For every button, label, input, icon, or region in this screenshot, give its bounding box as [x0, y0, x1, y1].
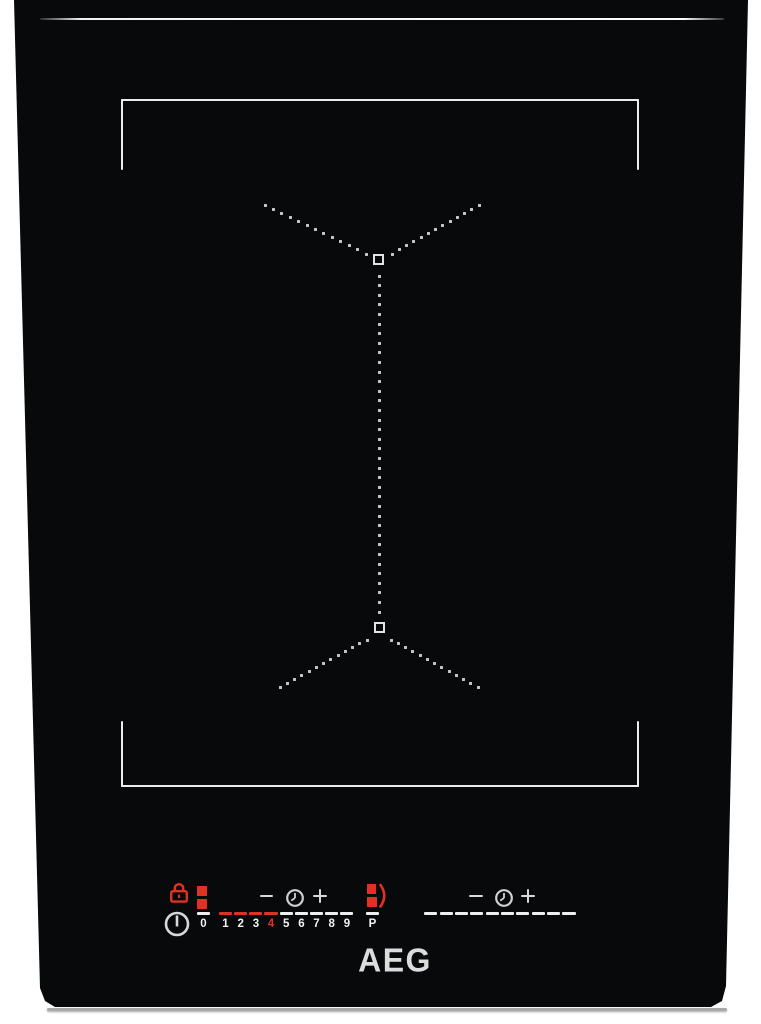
- power-level-5[interactable]: 5: [278, 912, 294, 930]
- guide-dot: [378, 467, 381, 470]
- guide-dot: [470, 208, 473, 211]
- guide-dot: [366, 639, 369, 642]
- guide-dot: [455, 674, 458, 677]
- guide-dot: [351, 646, 354, 649]
- guide-dot: [344, 650, 347, 653]
- power-level-3[interactable]: 3: [248, 912, 264, 930]
- right-slider-dash[interactable]: [532, 912, 545, 915]
- guide-dot: [456, 216, 459, 219]
- guide-dot: [280, 212, 283, 215]
- guide-dot: [434, 228, 437, 231]
- guide-dot: [322, 232, 325, 235]
- guide-dot: [469, 682, 472, 685]
- guide-dot: [378, 419, 381, 422]
- guide-dot: [426, 658, 429, 661]
- guide-dot: [308, 670, 311, 673]
- power-level-8[interactable]: 8: [324, 912, 340, 930]
- guide-dot: [378, 457, 381, 460]
- guide-dot: [405, 244, 408, 247]
- guide-dot: [378, 476, 381, 479]
- zone-connector-square-top: [373, 254, 384, 265]
- guide-dot: [378, 572, 381, 575]
- power-level-9[interactable]: 9: [339, 912, 355, 930]
- guide-dot: [412, 240, 415, 243]
- brand-logo: AEG: [347, 941, 443, 979]
- guide-dot: [314, 228, 317, 231]
- guide-dot: [378, 611, 381, 614]
- front-edge-shadow: [47, 1008, 727, 1012]
- timer-clock-icon[interactable]: [285, 888, 305, 908]
- guide-dot: [448, 670, 451, 673]
- minus-icon[interactable]: [260, 895, 274, 898]
- guide-dot: [419, 654, 422, 657]
- zone-connector-square-bottom: [374, 622, 385, 633]
- guide-dot: [390, 639, 393, 642]
- guide-dot: [378, 486, 381, 489]
- guide-dot: [378, 399, 381, 402]
- lock-icon[interactable]: [168, 882, 190, 904]
- guide-dot: [297, 220, 300, 223]
- guide-dot: [378, 380, 381, 383]
- right-slider-dash[interactable]: [486, 912, 499, 915]
- right-slider-dash[interactable]: [440, 912, 453, 915]
- guide-dot: [378, 553, 381, 556]
- guide-dot: [337, 654, 340, 657]
- guide-dot: [378, 505, 381, 508]
- guide-dot: [463, 212, 466, 215]
- guide-dot: [441, 224, 444, 227]
- guide-dot: [378, 275, 381, 278]
- guide-dot: [378, 438, 381, 441]
- power-level-4[interactable]: 4: [263, 912, 279, 930]
- guide-dot: [378, 591, 381, 594]
- guide-dot: [378, 332, 381, 335]
- guide-dot: [378, 543, 381, 546]
- guide-dot: [339, 240, 342, 243]
- guide-dot: [449, 220, 452, 223]
- guide-dot: [264, 204, 267, 207]
- guide-dot: [378, 582, 381, 585]
- power-level-2[interactable]: 2: [233, 912, 249, 930]
- guide-dot: [356, 248, 359, 251]
- guide-dot: [378, 534, 381, 537]
- power-icon[interactable]: [163, 910, 191, 938]
- power-level-P[interactable]: P: [365, 912, 381, 930]
- guide-dot: [378, 361, 381, 364]
- guide-dot: [391, 253, 394, 256]
- guide-dot: [378, 303, 381, 306]
- right-slider-dash[interactable]: [455, 912, 468, 915]
- guide-dot: [272, 208, 275, 211]
- right-slider-dash[interactable]: [501, 912, 514, 915]
- guide-dot: [331, 236, 334, 239]
- guide-dot: [378, 563, 381, 566]
- guide-dot: [322, 662, 325, 665]
- glass-surface: [0, 0, 761, 1024]
- guide-dot: [397, 642, 400, 645]
- guide-dot: [315, 666, 318, 669]
- power-level-7[interactable]: 7: [309, 912, 325, 930]
- guide-dot: [306, 224, 309, 227]
- guide-dot: [378, 313, 381, 316]
- power-level-0[interactable]: 0: [196, 912, 212, 930]
- guide-dot: [378, 284, 381, 287]
- guide-dot: [286, 682, 289, 685]
- right-slider-dash[interactable]: [562, 912, 575, 915]
- guide-dot: [378, 515, 381, 518]
- right-slider-dash[interactable]: [470, 912, 483, 915]
- guide-dot: [477, 686, 480, 689]
- guide-dot: [440, 666, 443, 669]
- guide-dot: [300, 674, 303, 677]
- guide-dot: [378, 428, 381, 431]
- guide-dot: [478, 204, 481, 207]
- guide-dot: [378, 342, 381, 345]
- guide-dot: [378, 601, 381, 604]
- top-edge-highlight: [40, 18, 724, 20]
- guide-dot: [293, 678, 296, 681]
- guide-dot: [378, 447, 381, 450]
- power-level-1[interactable]: 1: [218, 912, 234, 930]
- right-slider-dash[interactable]: [547, 912, 560, 915]
- guide-dot: [348, 244, 351, 247]
- guide-dot: [420, 236, 423, 239]
- guide-dot: [378, 524, 381, 527]
- guide-dot: [378, 351, 381, 354]
- timer-clock-icon-right[interactable]: [494, 888, 514, 908]
- guide-dot: [411, 650, 414, 653]
- guide-dot: [433, 662, 436, 665]
- guide-dot: [289, 216, 292, 219]
- minus-icon-right[interactable]: [469, 895, 483, 898]
- guide-dot: [378, 323, 381, 326]
- induction-hob: 0123456789P AEG: [0, 0, 761, 1024]
- guide-dot: [427, 232, 430, 235]
- power-level-6[interactable]: 6: [293, 912, 309, 930]
- guide-dot: [378, 409, 381, 412]
- right-slider-dash[interactable]: [424, 912, 437, 915]
- guide-dot: [329, 658, 332, 661]
- guide-dot: [378, 495, 381, 498]
- guide-dot: [279, 686, 282, 689]
- guide-dot: [378, 294, 381, 297]
- right-slider-dash[interactable]: [516, 912, 529, 915]
- guide-dot: [365, 253, 368, 256]
- guide-dot: [378, 390, 381, 393]
- guide-dot: [398, 248, 401, 251]
- guide-dot: [378, 371, 381, 374]
- guide-dot: [462, 678, 465, 681]
- guide-dot: [404, 646, 407, 649]
